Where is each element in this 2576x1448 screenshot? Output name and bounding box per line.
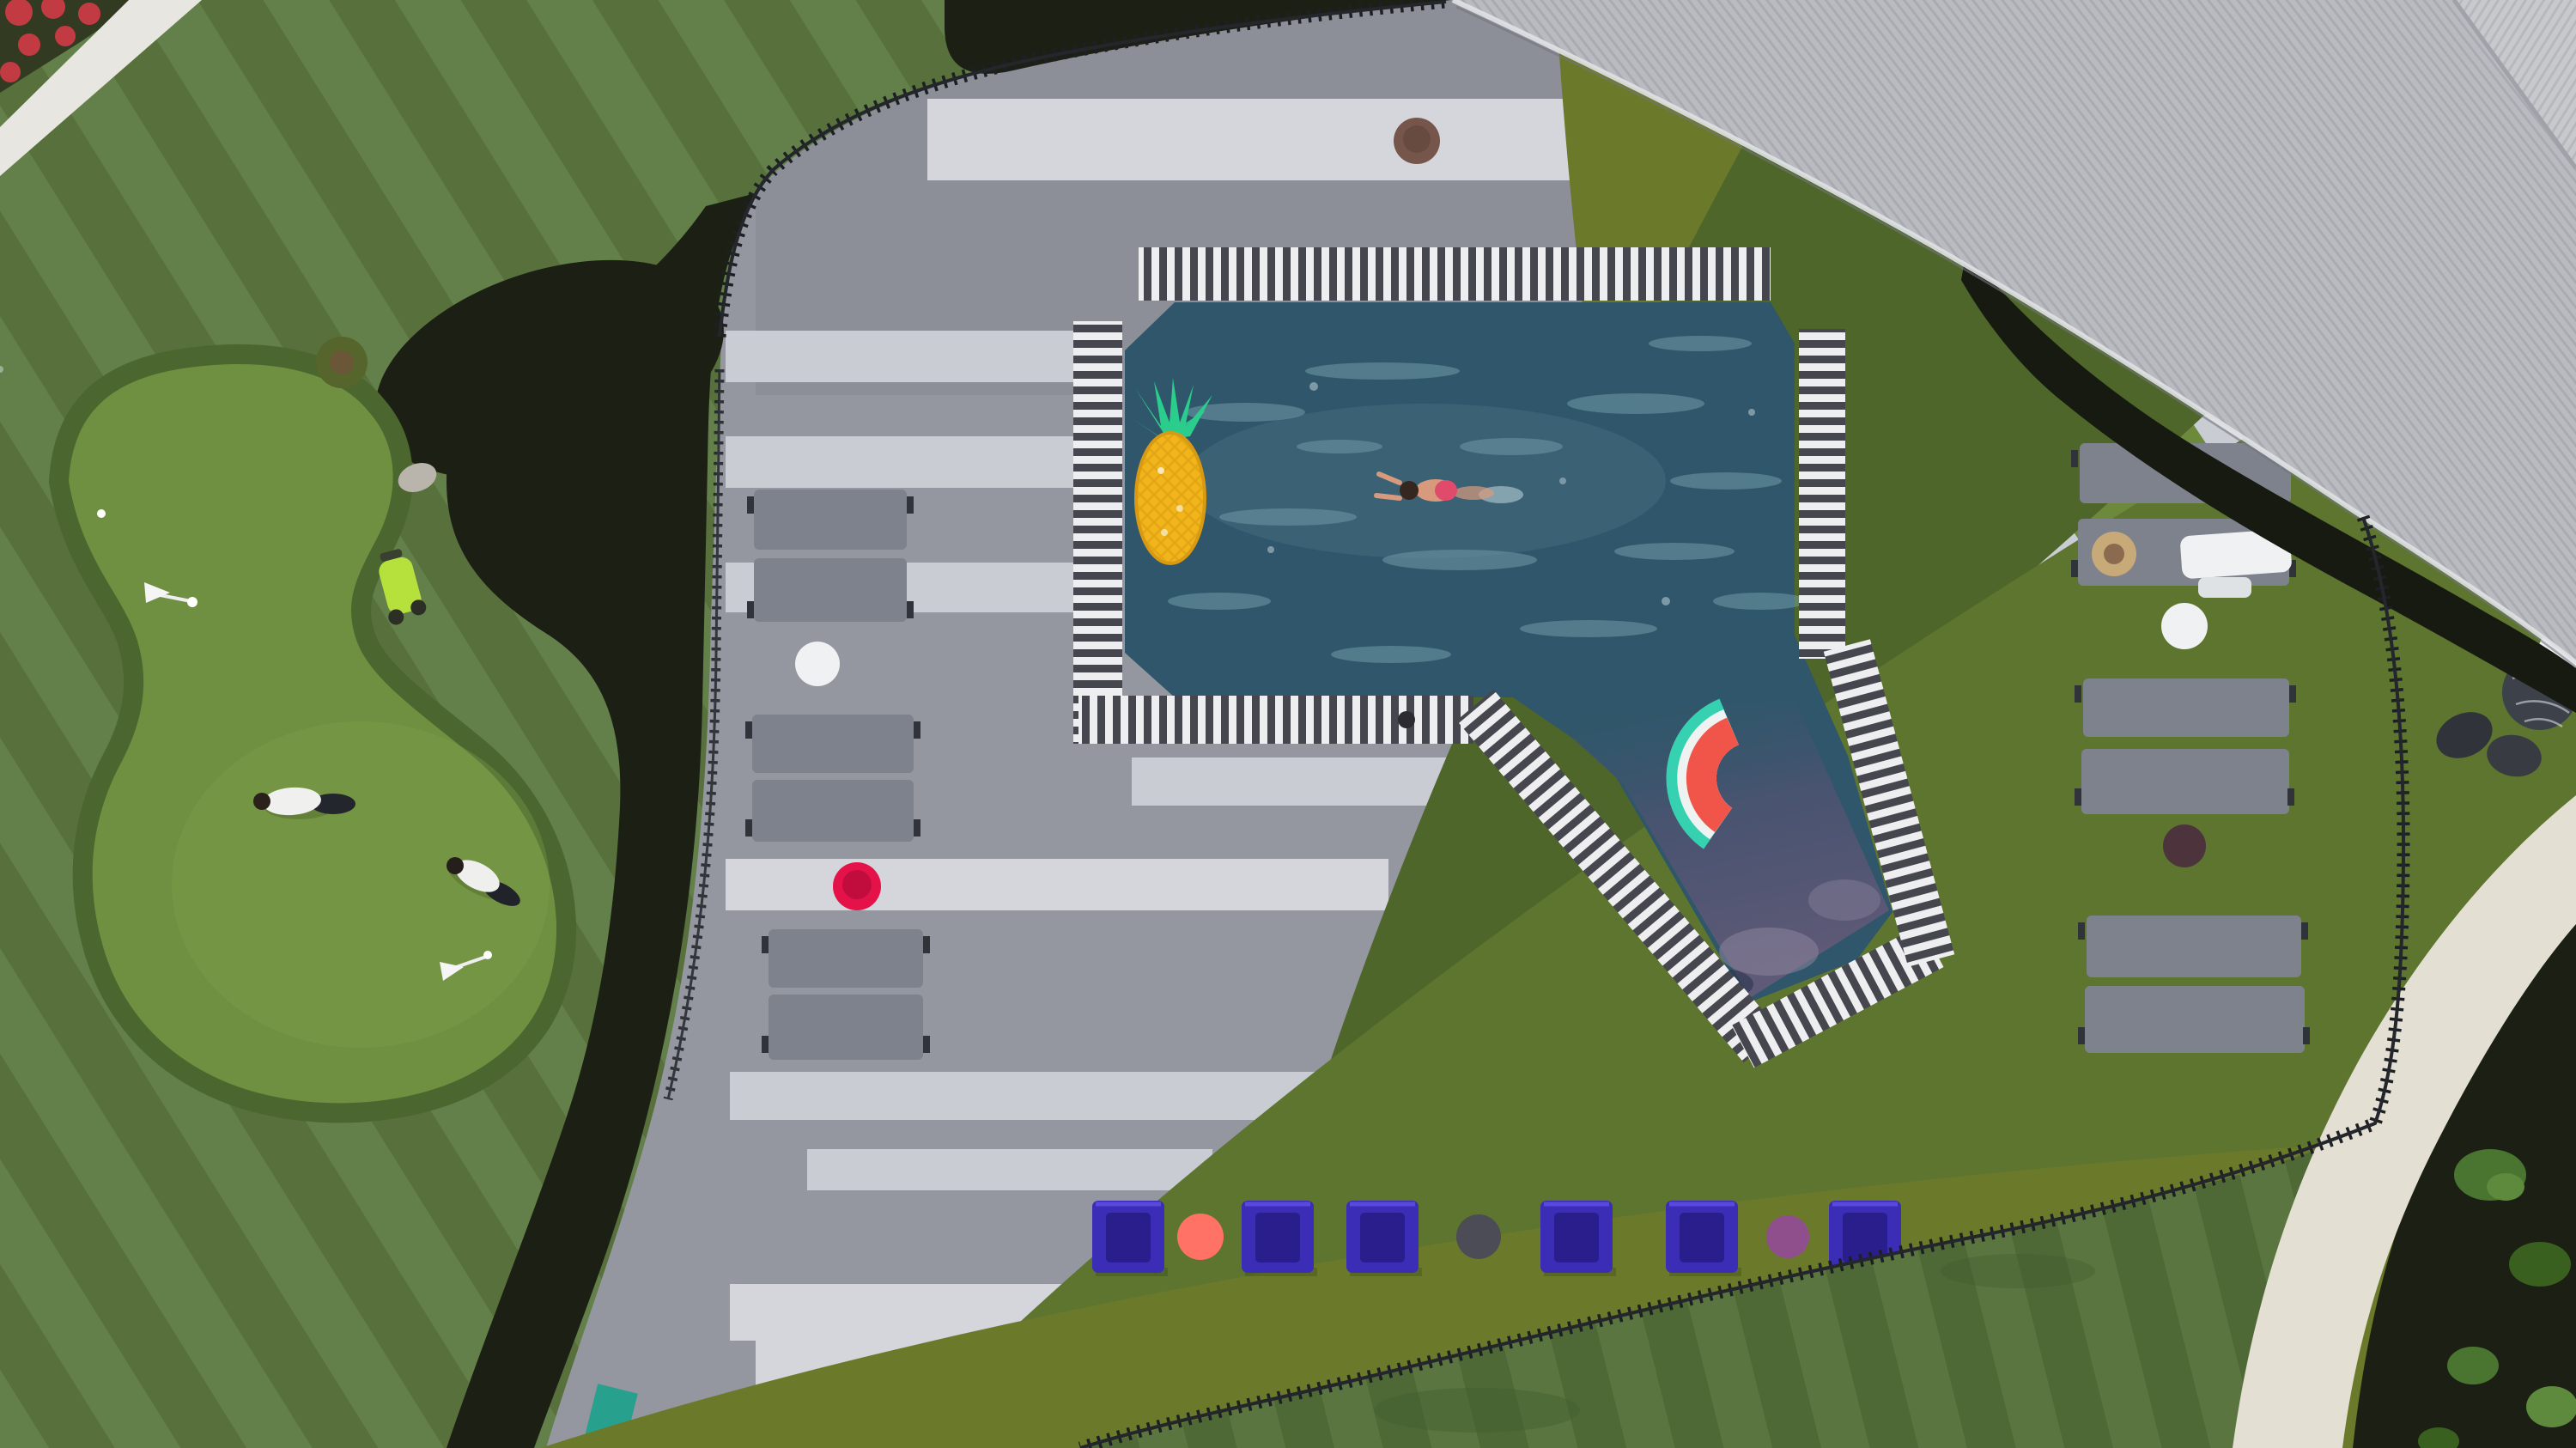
palm-trunk-top [330, 350, 354, 374]
highlight-dot [1161, 529, 1168, 536]
sun-lounger [752, 715, 914, 773]
sun-lounger [754, 558, 907, 622]
sun-lounger [2087, 916, 2301, 977]
golfer-head [447, 857, 464, 874]
golfer-head [253, 793, 270, 810]
border-left [1073, 321, 1122, 744]
golf-ball [483, 951, 492, 959]
sun-lounger [2081, 749, 2289, 814]
cube-seat [1346, 1201, 1422, 1276]
highlight-dot [1176, 505, 1183, 512]
deck-stripe [726, 331, 1078, 382]
side-table-white [795, 642, 840, 686]
sun-lounger [754, 490, 907, 550]
aerial-photo-stage [0, 0, 2576, 1448]
ottoman-plum [1766, 1215, 1809, 1258]
golf-ball [97, 509, 106, 518]
border-right [1799, 329, 1845, 659]
sun-lounger [769, 995, 923, 1060]
aerial-pool-courtyard-photo [0, 0, 2576, 1448]
swimsuit [1435, 480, 1457, 501]
lawn-patch [1374, 1388, 1580, 1433]
deck-stripe [726, 436, 1079, 488]
sun-lounger [752, 780, 914, 842]
ledge-highlight [1719, 928, 1819, 976]
ledge-highlight [1808, 879, 1880, 921]
ottoman-inner [842, 870, 872, 899]
drain-cover [1398, 711, 1415, 728]
side-table-white [2161, 603, 2208, 649]
deck-stripe [726, 859, 1388, 910]
stepping-stone [1394, 118, 1440, 164]
ottoman-maroon [2163, 824, 2206, 867]
towel-fold [2198, 577, 2251, 598]
red-ottoman [833, 862, 881, 910]
golf-ball [187, 597, 197, 607]
cube-seat [1092, 1201, 1168, 1276]
ottoman-coral [1177, 1214, 1224, 1260]
sun-lounger [2085, 986, 2305, 1053]
swimmer-legs [1453, 486, 1494, 500]
deck-stripe [807, 1149, 1212, 1190]
sun-lounger [769, 929, 923, 988]
ottoman-slate [1456, 1214, 1501, 1259]
highlight-dot [1157, 467, 1164, 474]
cube-seat [1540, 1201, 1616, 1276]
cube-seat [1666, 1201, 1741, 1276]
sun-hat-crown [2104, 544, 2124, 564]
sun-lounger [2083, 678, 2289, 737]
cube-seat [1242, 1201, 1317, 1276]
swimmer-head [1400, 481, 1419, 500]
lawn-patch [1941, 1254, 2095, 1288]
lounger-pair-left-3 [762, 929, 930, 1060]
border-top [1139, 247, 1771, 301]
